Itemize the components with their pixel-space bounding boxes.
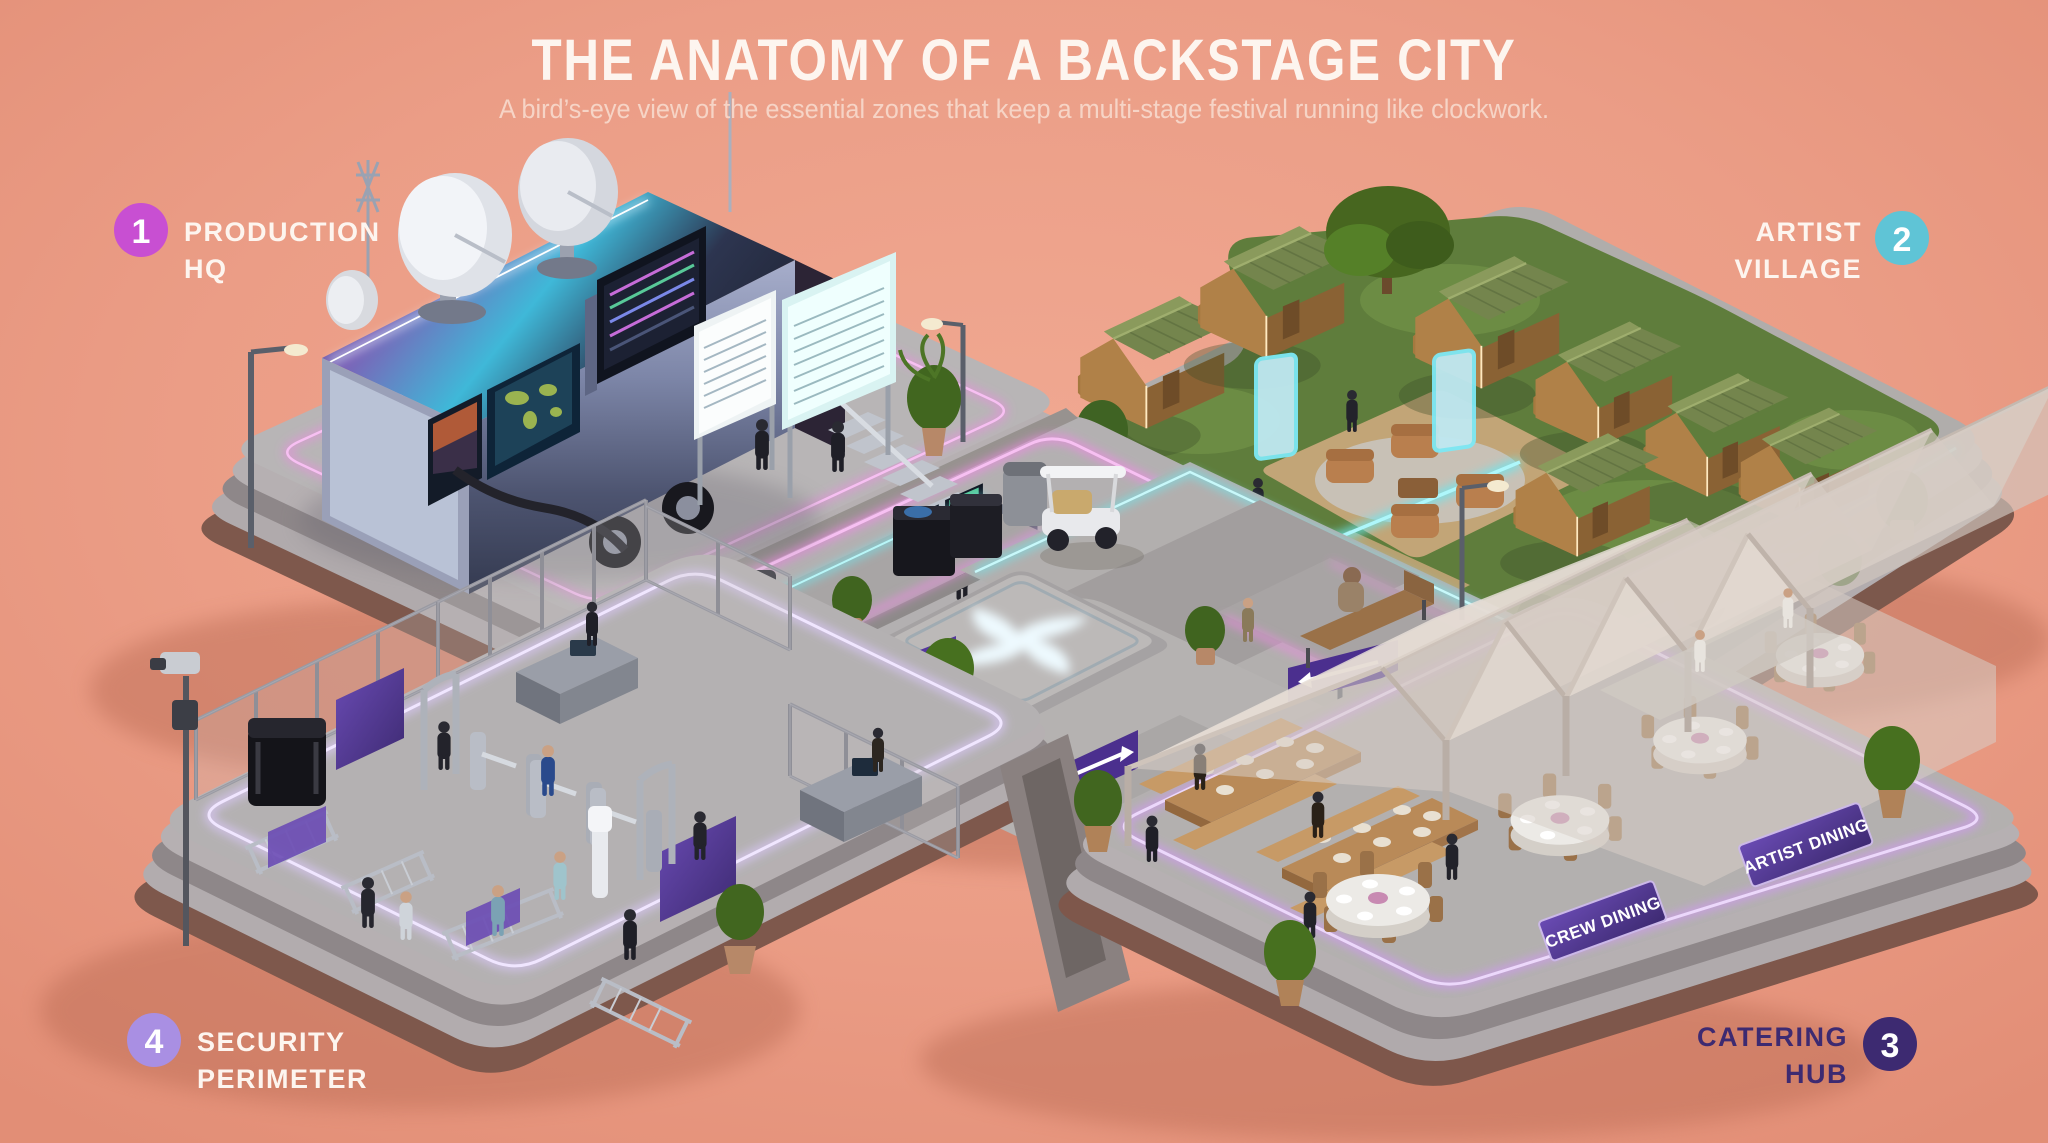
svg-text:1: 1 [132, 213, 151, 251]
svg-text:HUB: HUB [1785, 1059, 1848, 1089]
svg-text:2: 2 [1893, 221, 1912, 259]
svg-text:HQ: HQ [184, 254, 228, 284]
svg-text:SECURITY: SECURITY [197, 1027, 346, 1057]
svg-text:A bird’s-eye view of the essen: A bird’s-eye view of the essential zones… [499, 94, 1549, 124]
svg-text:CATERING: CATERING [1697, 1022, 1848, 1052]
svg-text:3: 3 [1881, 1027, 1900, 1065]
svg-text:PERIMETER: PERIMETER [197, 1064, 368, 1094]
svg-text:ARTIST: ARTIST [1756, 217, 1863, 247]
svg-text:PRODUCTION: PRODUCTION [184, 217, 381, 247]
svg-text:THE ANATOMY OF A BACKSTAGE CIT: THE ANATOMY OF A BACKSTAGE CITY [532, 28, 1517, 93]
svg-text:VILLAGE: VILLAGE [1734, 254, 1862, 284]
svg-text:4: 4 [145, 1023, 164, 1061]
